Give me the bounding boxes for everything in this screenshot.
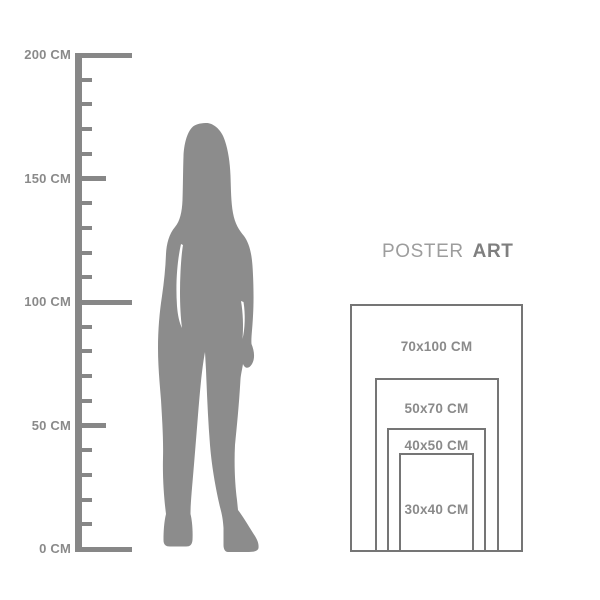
poster-size-label-30x40: 30x40 CM — [367, 502, 507, 518]
poster-size-label-70x100: 70x100 CM — [367, 339, 507, 355]
poster-size-guide: 200 CM150 CM100 CM50 CM0 CM POSTER ART 7… — [0, 0, 600, 600]
poster-size-label-50x70: 50x70 CM — [367, 401, 507, 417]
title-word-art: ART — [473, 241, 514, 262]
woman-silhouette-body — [158, 123, 259, 552]
title-word-poster: POSTER — [382, 241, 464, 262]
poster-art-title: POSTER ART — [382, 241, 513, 263]
